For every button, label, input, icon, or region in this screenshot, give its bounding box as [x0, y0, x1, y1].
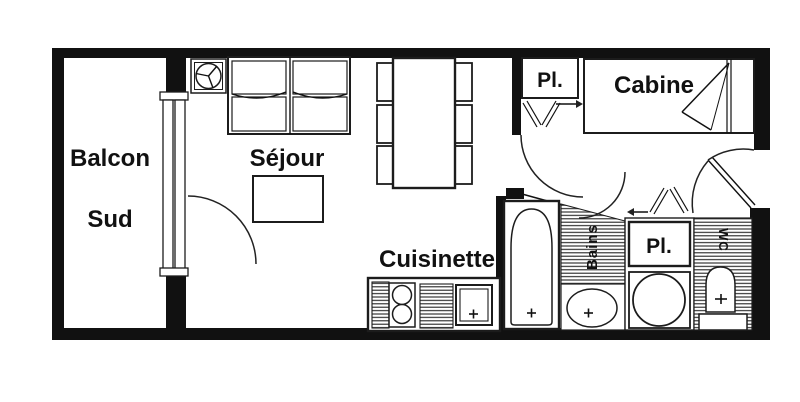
bathroom-label-vertical: Bains — [584, 224, 601, 270]
chair-icon — [455, 105, 472, 143]
floor-plan: Balcon Sud Séjour — [0, 0, 800, 402]
living-room-label: Séjour — [250, 145, 325, 172]
wc-room: WC — [694, 218, 752, 330]
balcony-door-arc-icon — [188, 196, 256, 264]
closet-top-label: Pl. — [537, 69, 563, 92]
stove-icon — [389, 283, 415, 327]
balcony-room: Balcon Sud — [70, 145, 150, 233]
wall-stub-window-bottom — [166, 274, 186, 330]
closet-bottom-label: Pl. — [646, 235, 672, 258]
chair-icon — [455, 63, 472, 101]
closet-bottom: Pl. — [625, 187, 694, 330]
kitchen-label: Cuisinette — [379, 246, 495, 273]
bathtub-icon — [504, 201, 559, 329]
wall-right-lower — [750, 208, 770, 340]
arrow-left-icon — [627, 208, 648, 216]
wc-label-vertical: WC — [716, 228, 731, 252]
closet-top: Pl. — [522, 58, 583, 127]
toilet-cistern — [699, 314, 747, 330]
balcony-label-line1: Balcon — [70, 145, 150, 172]
bifold-door-icon — [650, 187, 688, 214]
kitchen-counter — [368, 278, 500, 331]
entrance-door-icon — [692, 149, 755, 213]
washbasin-icon — [561, 284, 625, 330]
round-table-icon — [191, 59, 226, 93]
chair-icon — [377, 105, 394, 143]
balcony-window-icon — [160, 92, 188, 276]
water-heater-icon — [629, 272, 690, 328]
chair-icon — [377, 146, 394, 184]
wall-stub-window-top — [166, 52, 186, 94]
balcony-label-line2: Sud — [87, 206, 132, 233]
kitchen-worktop-hatch — [420, 284, 453, 328]
wall-stub-hall — [512, 52, 521, 135]
bifold-door-icon — [523, 101, 560, 127]
coffee-table-icon — [253, 176, 323, 222]
arrow-right-icon — [556, 100, 583, 108]
sofa-bed-icon — [228, 57, 350, 134]
cabin-label: Cabine — [614, 72, 694, 99]
wall-right-upper — [754, 48, 770, 150]
chair-icon — [377, 63, 394, 101]
cabin-door-arc-icon — [521, 135, 583, 197]
wall-stub-bath-top — [506, 188, 524, 199]
wall-top — [52, 48, 770, 58]
kitchen-cabinet-hatch — [372, 282, 389, 328]
wall-left — [52, 48, 64, 340]
floor-plan-page: Balcon Sud Séjour — [0, 0, 800, 402]
chair-icon — [455, 146, 472, 184]
dining-table-icon — [377, 58, 472, 188]
kitchen-sink-icon — [456, 285, 492, 325]
